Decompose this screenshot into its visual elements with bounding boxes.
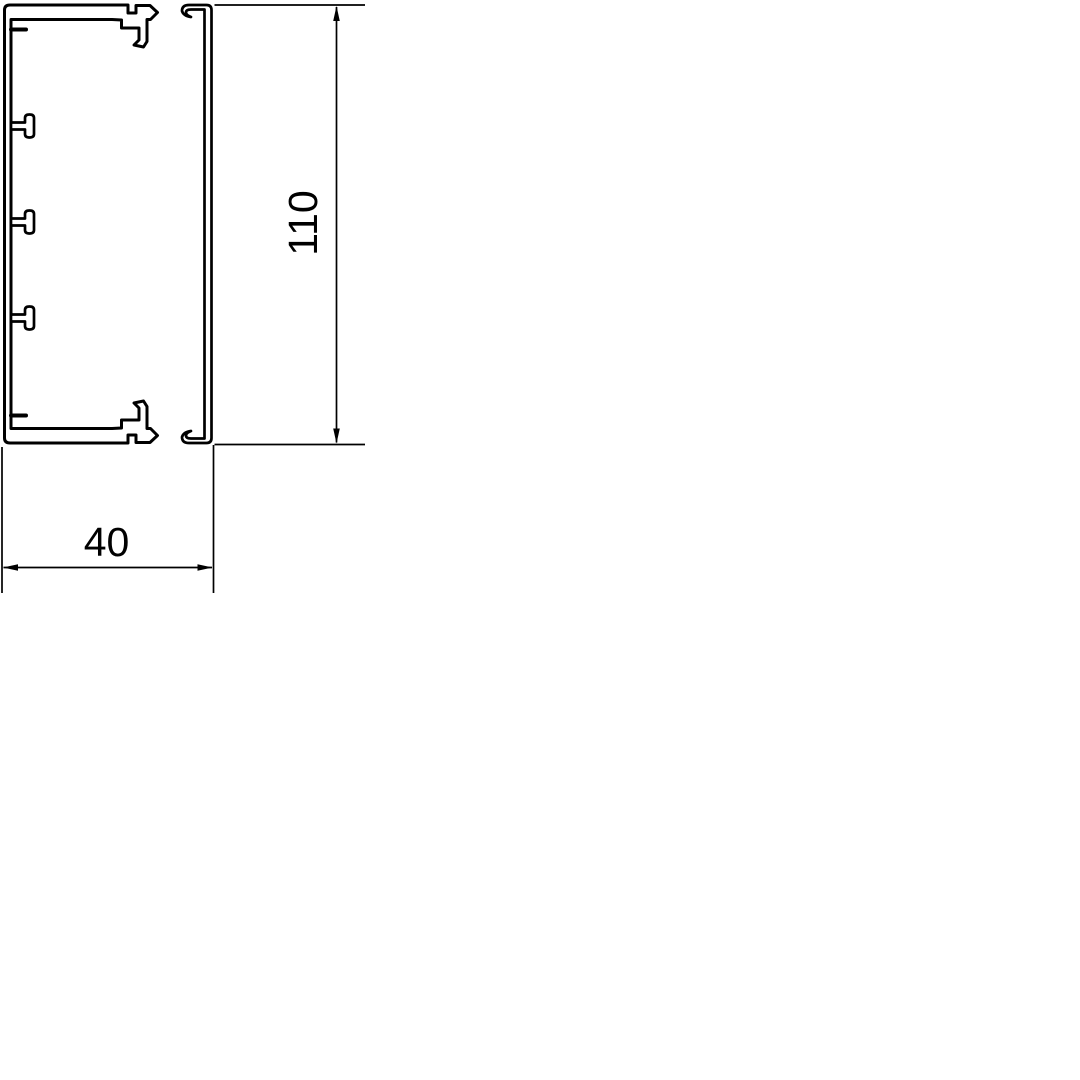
width-dimension-label: 40 xyxy=(84,519,130,565)
arrowhead-up-icon xyxy=(333,6,340,21)
arrowhead-left-icon xyxy=(3,564,18,571)
trunking-cross-section-drawing: 110 40 xyxy=(0,0,1080,1080)
arrowhead-down-icon xyxy=(333,429,340,444)
technical-drawing-page: 110 40 xyxy=(0,0,1080,1080)
retaining-stud xyxy=(11,307,34,330)
arrowhead-right-icon xyxy=(198,564,213,571)
retaining-stud xyxy=(11,115,34,138)
retaining-stud xyxy=(11,211,34,234)
height-dimension-label: 110 xyxy=(280,190,326,255)
height-dimension: 110 xyxy=(215,5,366,445)
duct-cover-profile xyxy=(182,5,212,443)
width-dimension: 40 xyxy=(2,445,214,593)
